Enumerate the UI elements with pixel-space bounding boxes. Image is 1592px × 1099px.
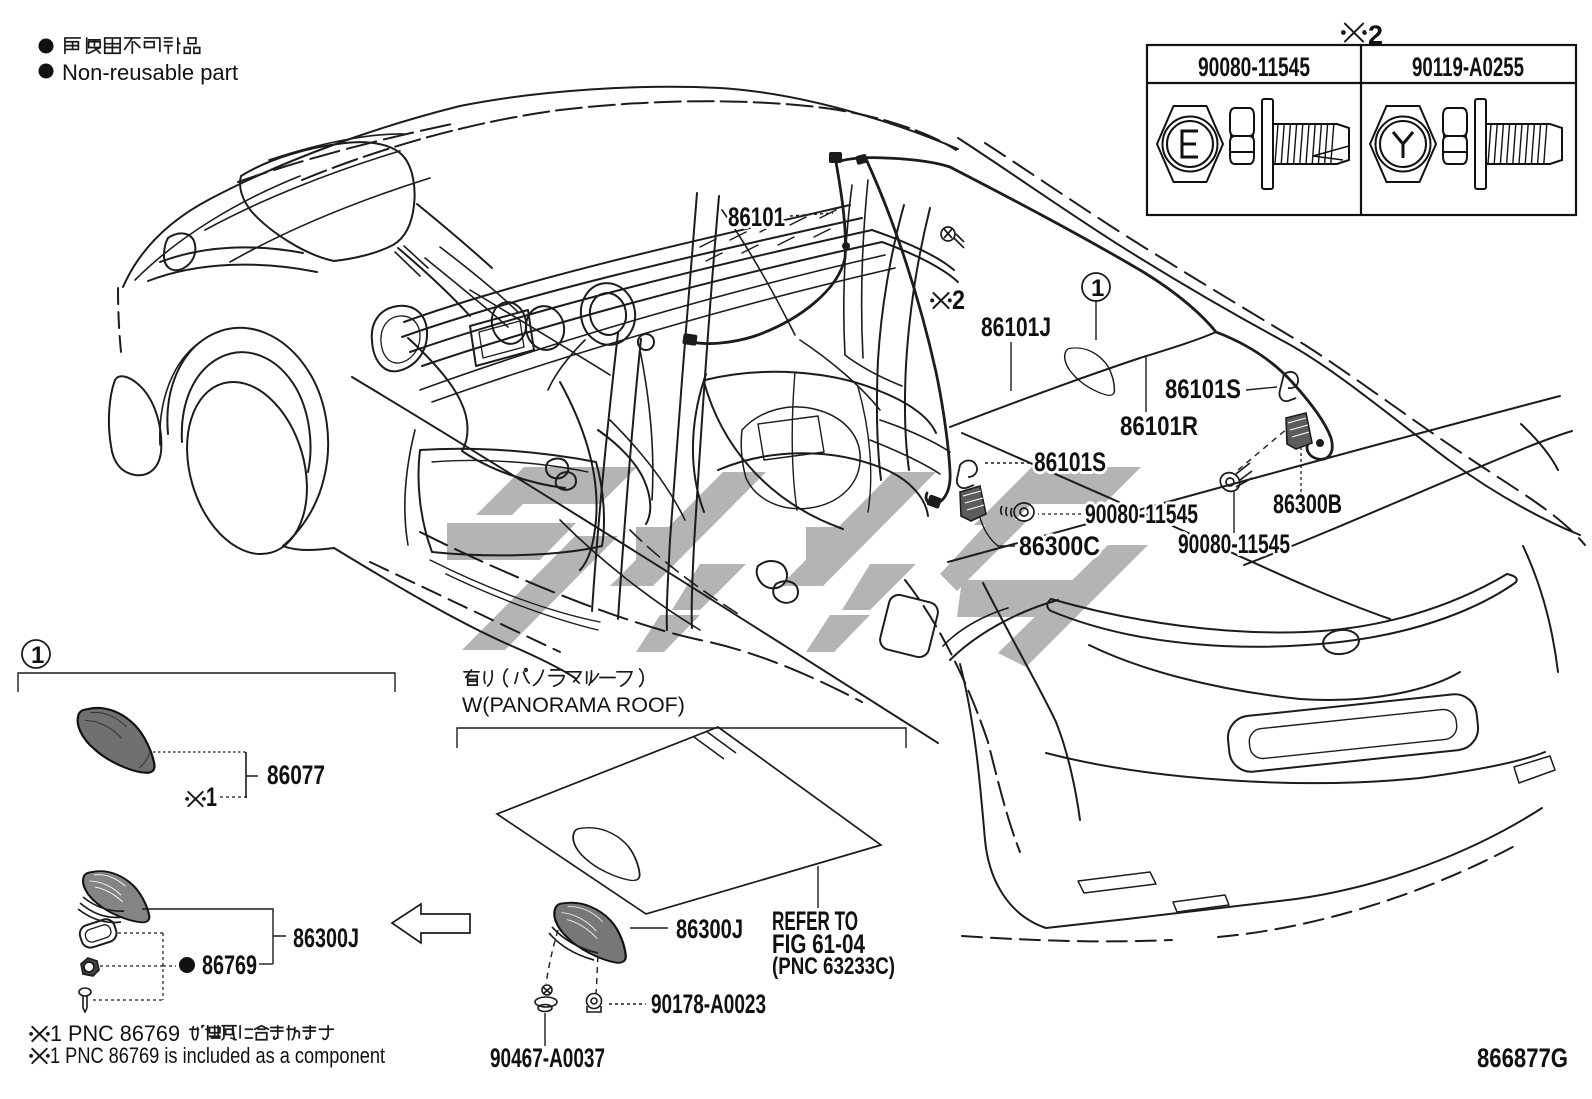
svg-text:(PNC 63233C): (PNC 63233C) — [772, 953, 895, 980]
svg-text:W(PANORAMA ROOF): W(PANORAMA ROOF) — [462, 693, 685, 717]
svg-text:Non-reusable part: Non-reusable part — [62, 60, 238, 85]
svg-text:86101S: 86101S — [1165, 374, 1241, 404]
svg-text:90080-11545: 90080-11545 — [1085, 499, 1198, 529]
svg-text:86101R: 86101R — [1120, 411, 1198, 441]
svg-text:86077: 86077 — [267, 760, 325, 790]
svg-text:1: 1 — [1091, 275, 1104, 302]
svg-text:86300J: 86300J — [293, 923, 359, 953]
svg-text:1: 1 — [31, 642, 44, 669]
svg-text:1 PNC 86769 is included as a c: 1 PNC 86769 is included as a component — [50, 1043, 385, 1068]
svg-text:90178-A0023: 90178-A0023 — [651, 989, 766, 1019]
svg-text:86300J: 86300J — [676, 914, 743, 944]
svg-text:86300C: 86300C — [1019, 531, 1100, 561]
svg-text:90119-A0255: 90119-A0255 — [1412, 52, 1524, 82]
svg-text:86101: 86101 — [728, 202, 785, 232]
svg-text:2: 2 — [952, 285, 965, 315]
svg-text:866877G: 866877G — [1477, 1043, 1568, 1073]
svg-text:86300B: 86300B — [1273, 489, 1342, 519]
svg-text:86101J: 86101J — [981, 312, 1051, 342]
svg-text:86101S: 86101S — [1034, 447, 1106, 477]
svg-text:86769: 86769 — [202, 950, 257, 980]
svg-text:90080-11545: 90080-11545 — [1198, 52, 1310, 82]
svg-text:90080-11545: 90080-11545 — [1178, 529, 1290, 559]
svg-text:1: 1 — [206, 782, 217, 812]
svg-text:90467-A0037: 90467-A0037 — [490, 1043, 605, 1073]
